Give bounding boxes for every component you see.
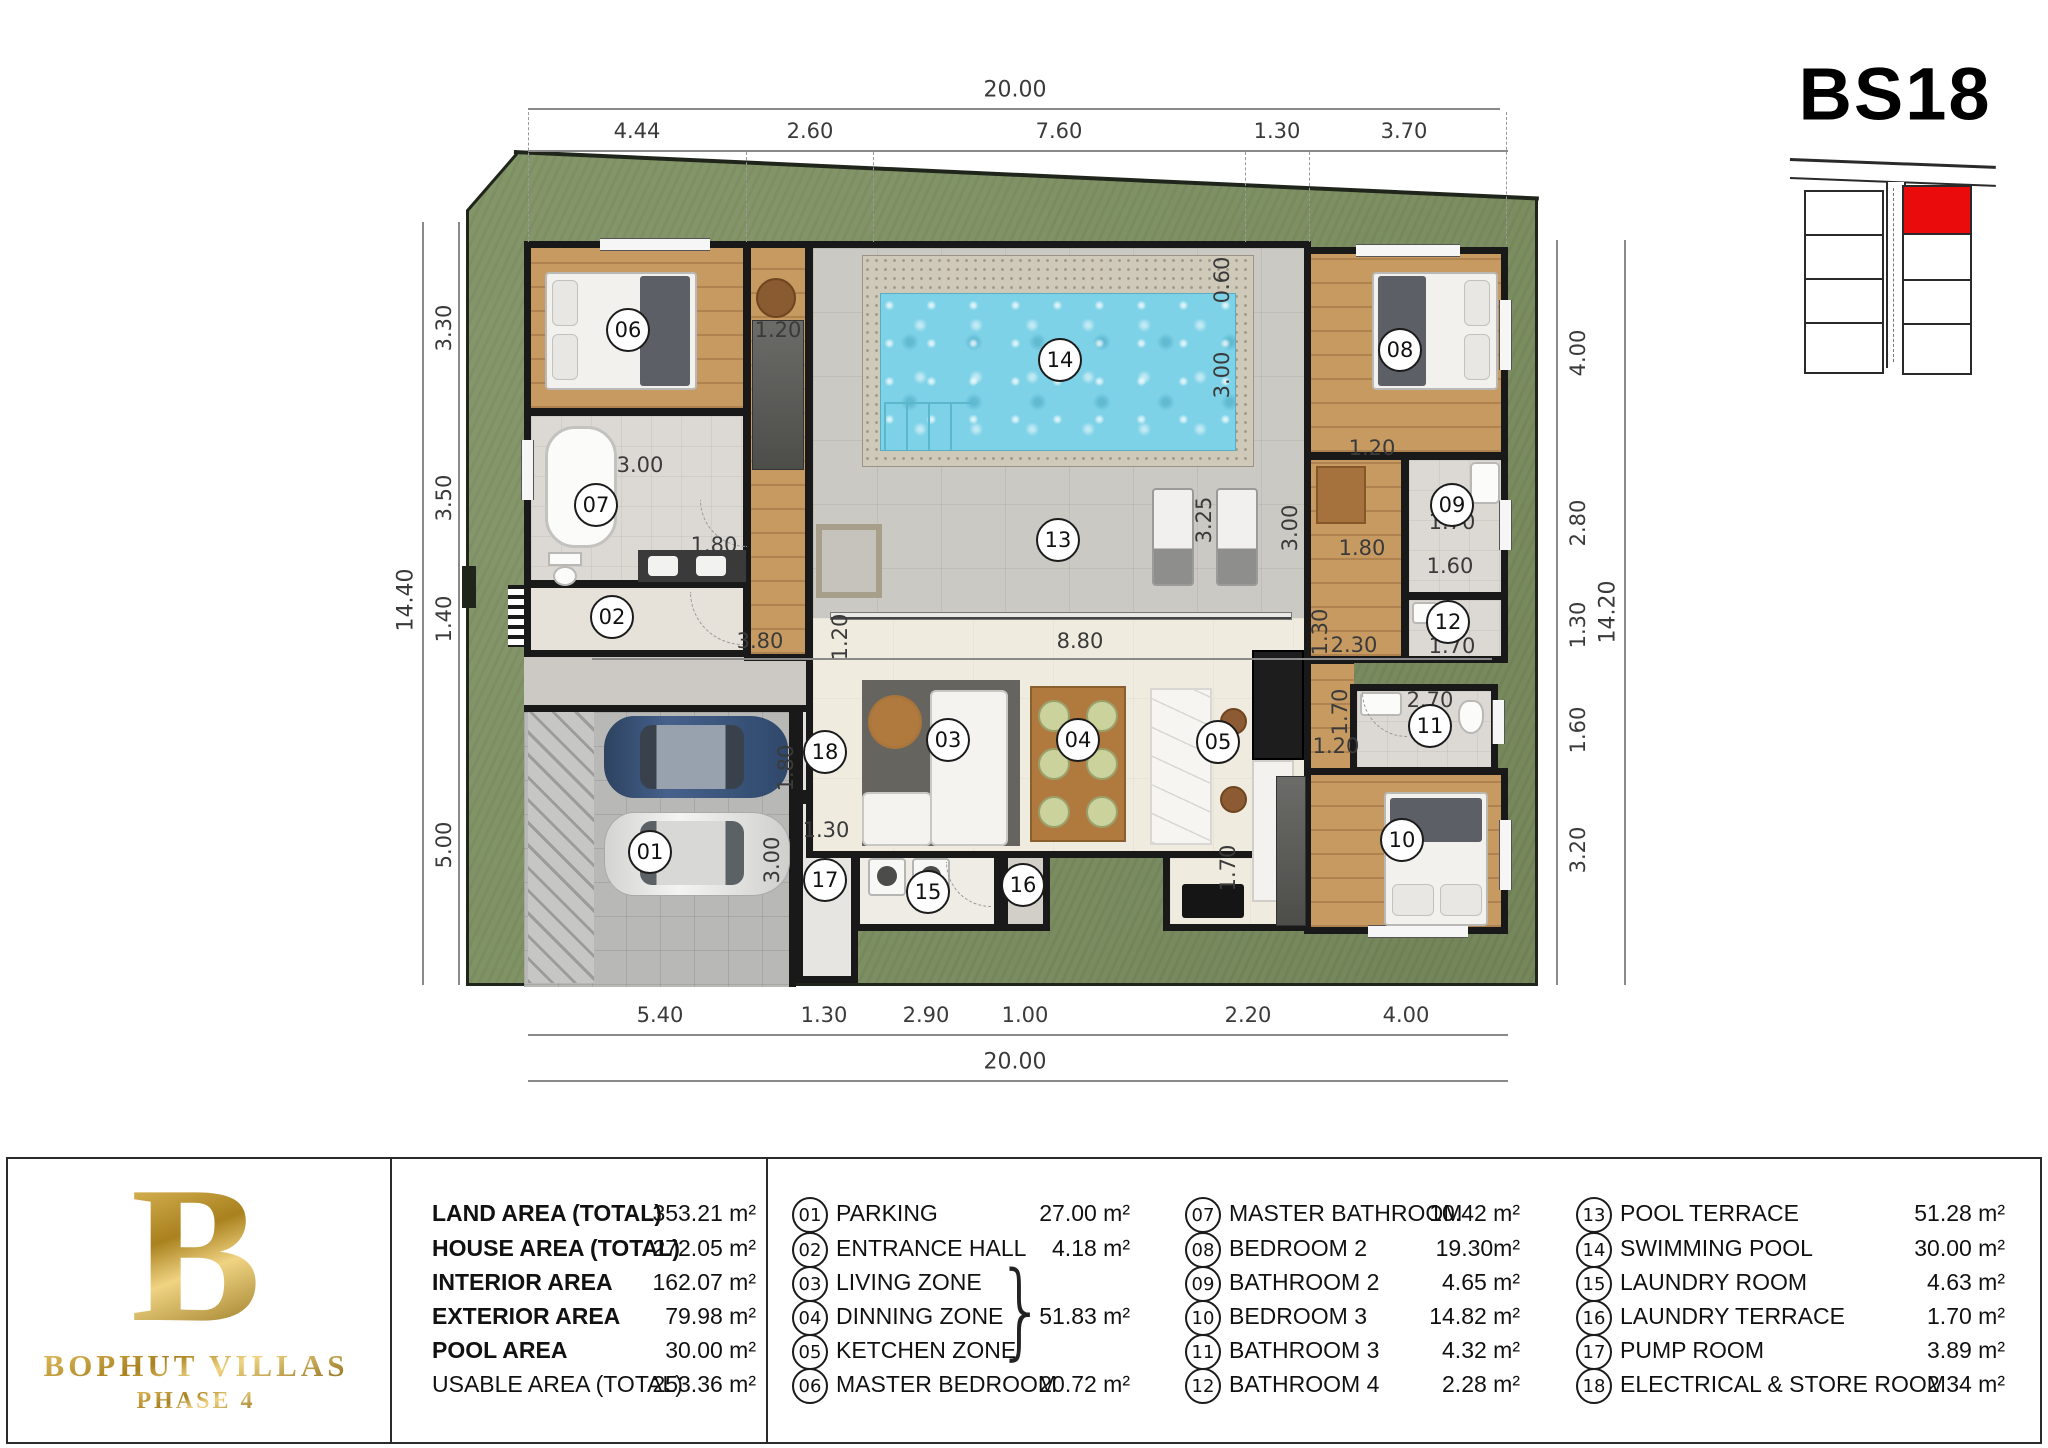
legend-badge-10: 10 — [1185, 1300, 1221, 1336]
area-value-exterior: 79.98 m² — [600, 1303, 756, 1330]
badge-laundry-terrace: 16 — [1001, 863, 1045, 907]
badge-bedroom2: 08 — [1378, 328, 1422, 372]
legend-badge-14: 14 — [1576, 1232, 1612, 1268]
legend-value-07: 10.42 m² — [1360, 1200, 1520, 1227]
floor-plan-page: 01 02 03 04 05 06 07 08 09 10 11 12 13 1… — [0, 0, 2048, 1448]
legend-value-10: 14.82 m² — [1360, 1303, 1520, 1330]
car-blue — [604, 716, 788, 798]
dimline-top-total — [528, 108, 1500, 110]
window-bedroom2-side — [1499, 300, 1512, 370]
bed-master-pillow-2 — [552, 334, 578, 380]
area-value-house: 272.05 m² — [600, 1235, 756, 1262]
porch-steps — [508, 585, 524, 647]
dim-left-total: 14.40 — [394, 569, 419, 632]
dim-left-4: 5.00 — [432, 822, 456, 869]
legend-badge-15: 15 — [1576, 1266, 1612, 1302]
legend-label-03: LIVING ZONE — [836, 1269, 982, 1296]
brand-name: BOPHUT VILLAS — [44, 1348, 349, 1384]
legend-value-08: 19.30m² — [1360, 1235, 1520, 1262]
legend-badge-07: 07 — [1185, 1197, 1221, 1233]
legend-badge-12: 12 — [1185, 1368, 1221, 1404]
legend-label-10: BEDROOM 3 — [1229, 1303, 1367, 1330]
dimline-bottom-segs — [528, 1034, 1508, 1036]
window-master-bedroom — [600, 238, 710, 251]
dim-bottom-5: 2.20 — [1225, 1003, 1272, 1027]
legend-label-16: LAUNDRY TERRACE — [1620, 1303, 1845, 1330]
bed-bedroom3-pillow-2 — [1440, 884, 1482, 916]
dim-bedroom3-entry: 1.70 — [1328, 689, 1352, 736]
site-plot-l4 — [1804, 322, 1884, 374]
dim-master-hall: 1.80 — [691, 533, 738, 557]
sofa-main — [930, 690, 1008, 846]
legend-badge-04: 04 — [792, 1300, 828, 1336]
dim-top-total: 20.00 — [984, 78, 1047, 103]
vanity-sink-2 — [696, 556, 726, 576]
site-plot-r4 — [1902, 323, 1972, 375]
dim-bath2-lower: 1.60 — [1427, 554, 1474, 578]
dimline-right-total — [1624, 240, 1626, 985]
dim-bedroom2-hall: 1.80 — [1339, 536, 1386, 560]
legend-value-14: 30.00 m² — [1840, 1235, 2005, 1262]
dining-plate-6 — [1086, 796, 1118, 828]
dim-top-4: 1.30 — [1254, 119, 1301, 143]
window-bath3-side — [1492, 700, 1505, 744]
legend-label-09: BATHROOM 2 — [1229, 1269, 1379, 1296]
legend-badge-03: 03 — [792, 1266, 828, 1302]
dim-bottom-1: 5.40 — [637, 1003, 684, 1027]
badge-master-bedroom: 06 — [606, 308, 650, 352]
dim-right-2: 2.80 — [1566, 500, 1590, 547]
legend-value-16: 1.70 m² — [1840, 1303, 2005, 1330]
dimline-bottom-total — [528, 1080, 1508, 1082]
badge-pump-room: 17 — [803, 858, 847, 902]
brand-phase: PHASE 4 — [136, 1388, 255, 1415]
legend-badge-05: 05 — [792, 1334, 828, 1370]
dim-top-3: 7.60 — [1036, 119, 1083, 143]
dim-right-total: 14.20 — [1596, 581, 1621, 644]
dim-bath-master-width: 3.00 — [617, 453, 664, 477]
sun-lounger-2 — [1216, 488, 1258, 586]
dim-left-3: 1.40 — [432, 596, 456, 643]
dim-left-1: 3.30 — [432, 305, 456, 352]
dimline-left-segs — [458, 222, 460, 985]
bed-bedroom2-pillow-2 — [1464, 334, 1490, 380]
badge-dining: 04 — [1056, 718, 1100, 762]
bed-bedroom3-pillow-1 — [1392, 884, 1434, 916]
legend-badge-06: 06 — [792, 1368, 828, 1404]
badge-bedroom3: 10 — [1380, 818, 1424, 862]
legend-label-01: PARKING — [836, 1200, 938, 1227]
legend-badge-09: 09 — [1185, 1266, 1221, 1302]
legend-value-11: 4.32 m² — [1360, 1337, 1520, 1364]
toilet-bathroom3 — [1458, 700, 1484, 734]
legend-badge-02: 02 — [792, 1232, 828, 1268]
driveway-hatch — [528, 712, 594, 983]
legend-value-15: 4.63 m² — [1840, 1269, 2005, 1296]
dim-bottom-6: 4.00 — [1383, 1003, 1430, 1027]
dim-top-5: 3.70 — [1381, 119, 1428, 143]
dim-corridor-4: 2.30 — [1331, 633, 1378, 657]
legend-badge-16: 16 — [1576, 1300, 1612, 1336]
site-plot-r2 — [1902, 233, 1972, 281]
dim-store-height: 1.80 — [774, 745, 798, 792]
legend-badge-11: 11 — [1185, 1334, 1221, 1370]
dim-lounger-zone: 3.25 — [1192, 497, 1216, 544]
legend-label-15: LAUNDRY ROOM — [1620, 1269, 1807, 1296]
desk-bedroom2 — [1316, 466, 1366, 524]
kitchen-appliance-column — [1252, 650, 1304, 760]
dim-bottom-3: 2.90 — [903, 1003, 950, 1027]
dim-bedroom2-closet: 1.20 — [1349, 436, 1396, 460]
window-bedroom3-side — [1499, 820, 1512, 890]
bar-stool-2 — [1220, 786, 1247, 813]
dimline-corridor — [592, 658, 1492, 660]
vanity-sink-1 — [648, 556, 678, 576]
entrance-porch — [524, 657, 812, 705]
legend-value-12: 2.28 m² — [1360, 1371, 1520, 1398]
legend-value-09: 4.65 m² — [1360, 1269, 1520, 1296]
badge-entrance: 02 — [590, 595, 634, 639]
window-bedroom3 — [1368, 925, 1468, 938]
legend-badge-01: 01 — [792, 1197, 828, 1233]
dim-right-4: 1.60 — [1566, 707, 1590, 754]
badge-bathroom4: 12 — [1426, 600, 1470, 644]
dim-bottom-4: 1.00 — [1002, 1003, 1049, 1027]
dimline-top-segs — [528, 150, 1508, 152]
ext-line-1 — [528, 112, 529, 242]
legend-label-12: BATHROOM 4 — [1229, 1371, 1379, 1398]
outdoor-shower — [816, 524, 882, 598]
car-blue-roof — [640, 725, 744, 789]
hall-stool — [756, 278, 796, 318]
area-value-usable: 253.36 m² — [600, 1371, 756, 1398]
badge-bathroom3: 11 — [1408, 704, 1452, 748]
legend-divider-2 — [766, 1157, 768, 1444]
dimline-left-total — [422, 222, 424, 985]
legend-badge-08: 08 — [1185, 1232, 1221, 1268]
legend-label-14: SWIMMING POOL — [1620, 1235, 1813, 1262]
dim-bottom-total: 20.00 — [984, 1050, 1047, 1075]
dim-left-2: 3.50 — [432, 475, 456, 522]
site-plot-l1 — [1804, 190, 1884, 236]
dim-top-2: 2.60 — [787, 119, 834, 143]
legend-brace: } — [996, 1258, 1046, 1362]
dim-pool-edge: 0.60 — [1210, 257, 1234, 304]
area-value-pool: 30.00 m² — [600, 1337, 756, 1364]
legend-value-13: 51.28 m² — [1840, 1200, 2005, 1227]
legend-badge-13: 13 — [1576, 1197, 1612, 1233]
washing-machine-1-door — [877, 866, 897, 886]
window-bath2-side — [1499, 500, 1512, 550]
site-plot-l3 — [1804, 278, 1884, 324]
site-road-centerline — [1893, 188, 1894, 362]
site-road-top-1 — [1790, 158, 1996, 169]
area-label-exterior: EXTERIOR AREA — [432, 1303, 620, 1330]
dimline-right-segs — [1556, 240, 1558, 985]
badge-electrical: 18 — [803, 730, 847, 774]
badge-master-bathroom: 07 — [574, 483, 618, 527]
dim-kitchen-depth: 1.70 — [1216, 845, 1240, 892]
wardrobe-bedroom3 — [1276, 776, 1306, 926]
dim-parking-bay: 3.00 — [760, 837, 784, 884]
dim-right-3: 1.30 — [1566, 602, 1590, 649]
window-bedroom2 — [1356, 244, 1460, 257]
legend-label-05: KETCHEN ZONE — [836, 1337, 1016, 1364]
dim-right-1: 4.00 — [1566, 330, 1590, 377]
badge-parking: 01 — [628, 830, 672, 874]
legend-value-06: 20.72 m² — [960, 1371, 1130, 1398]
dim-bottom-2: 1.30 — [801, 1003, 848, 1027]
badge-kitchen: 05 — [1196, 720, 1240, 764]
dim-corridor-1: 3.80 — [737, 629, 784, 653]
sun-lounger-1 — [1152, 488, 1194, 586]
ext-line-3 — [873, 152, 874, 242]
legend-label-08: BEDROOM 2 — [1229, 1235, 1367, 1262]
site-plot-l2 — [1804, 234, 1884, 280]
legend-label-11: BATHROOM 3 — [1229, 1337, 1379, 1364]
window-bath-master — [521, 440, 534, 500]
legend-value-18: 2.34 m² — [1840, 1371, 2005, 1398]
dim-master-closet: 1.20 — [755, 318, 802, 342]
legend-label-13: POOL TERRACE — [1620, 1200, 1799, 1227]
legend-badge-18: 18 — [1576, 1368, 1612, 1404]
dim-terrace-depth: 3.00 — [1278, 505, 1302, 552]
dim-corridor-2: 1.20 — [828, 614, 852, 661]
badge-swimming-pool: 14 — [1038, 338, 1082, 382]
dim-corridor-3: 8.80 — [1057, 629, 1104, 653]
dim-top-1: 4.44 — [614, 119, 661, 143]
ext-line-6 — [1506, 112, 1507, 244]
badge-laundry: 15 — [906, 870, 950, 914]
area-value-land: 353.21 m² — [600, 1200, 756, 1227]
unit-title: BS18 — [1798, 52, 1991, 137]
bed-bedroom2-pillow-1 — [1464, 280, 1490, 326]
badge-bathroom2: 09 — [1430, 483, 1474, 527]
wardrobe-cabinet — [752, 320, 804, 470]
legend-value-01: 27.00 m² — [960, 1200, 1130, 1227]
kitchen-island — [1150, 688, 1212, 845]
badge-living: 03 — [926, 718, 970, 762]
site-plot-r3 — [1902, 279, 1972, 325]
area-label-interior: INTERIOR AREA — [432, 1269, 613, 1296]
legend-divider-1 — [390, 1157, 392, 1444]
dim-pool-width: 3.00 — [1210, 352, 1234, 399]
sink-bathroom2 — [1470, 462, 1500, 504]
badge-pool-terrace: 13 — [1036, 518, 1080, 562]
area-value-interior: 162.07 m² — [600, 1269, 756, 1296]
legend-label-17: PUMP ROOM — [1620, 1337, 1764, 1364]
brand-logo-letter: B — [131, 1168, 261, 1343]
ext-line-4 — [1245, 152, 1246, 242]
area-label-pool: POOL AREA — [432, 1337, 567, 1364]
dim-pump-width: 1.30 — [803, 818, 850, 842]
sofa-chaise — [862, 792, 932, 846]
coffee-table — [868, 695, 922, 749]
pool-steps — [884, 402, 972, 450]
terrace-sliding-door — [830, 612, 1292, 620]
legend-value-17: 3.89 m² — [1840, 1337, 2005, 1364]
legend-badge-17: 17 — [1576, 1334, 1612, 1370]
toilet-master-bowl — [553, 566, 577, 586]
ext-line-5 — [1309, 152, 1310, 242]
dim-terrace-corner: 1.30 — [1308, 609, 1332, 656]
ext-line-2 — [746, 152, 747, 242]
site-plot-r1-highlighted — [1902, 185, 1972, 235]
bed-master-pillow-1 — [552, 280, 578, 326]
dining-plate-5 — [1038, 796, 1070, 828]
dim-bedroom3-closet: 1.20 — [1313, 734, 1360, 758]
dim-right-5: 3.20 — [1566, 827, 1590, 874]
gate-post — [462, 566, 476, 608]
plot-boundary-right — [1535, 198, 1538, 986]
toilet-master — [548, 552, 582, 566]
